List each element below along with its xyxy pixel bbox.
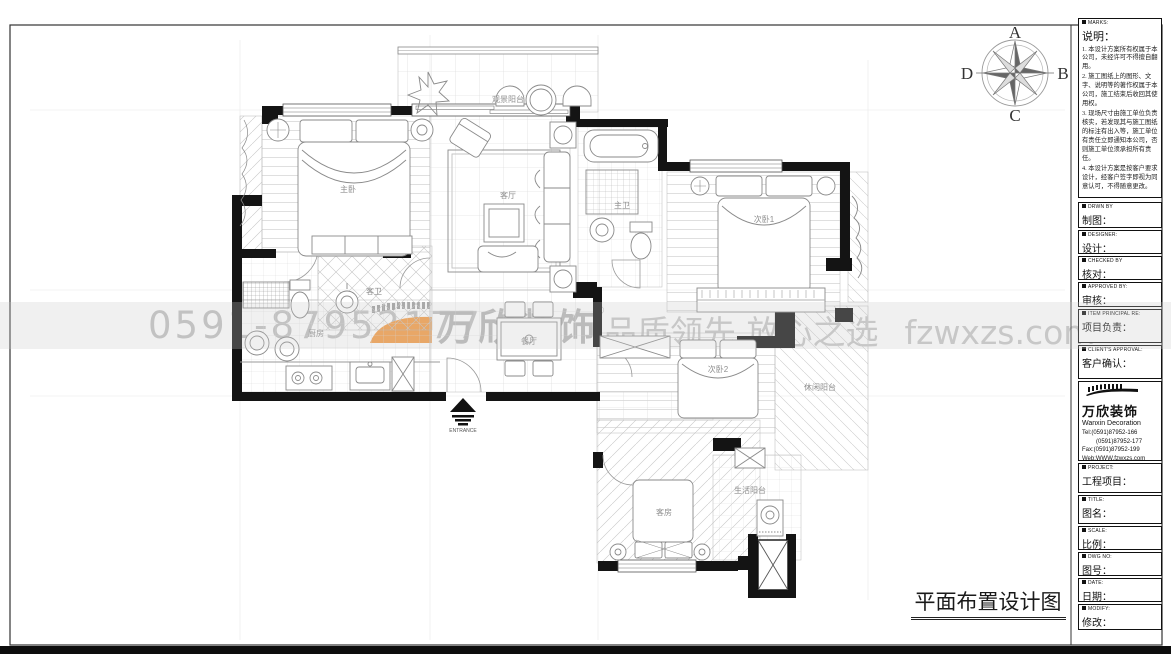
titleblock-company: 万欣装饰 Wanxin Decoration Tel:(0591)87952-1…	[1078, 381, 1162, 461]
room-label-bedroom-2: 次卧2	[708, 364, 729, 374]
checked-by-zh: 核对：	[1082, 266, 1158, 281]
note-item-2: 2. 施工图纸上的图形、文字、说明等的著作权属于本公司，施工结束后收回其使用权。	[1082, 73, 1158, 109]
bullet-square-icon	[1082, 284, 1086, 288]
titleblock: MARKS: 说明： 1. 本设计方案所有权属于本公司，未经许可不得擅自翻用。 …	[1078, 18, 1164, 632]
entrance-arrow-icon: ENTRANCE	[449, 398, 477, 434]
marks-zh-label: 说明：	[1082, 28, 1158, 44]
drawing-sheet: 0591-87952177 品质领先 放心之选fzwxzs.com 万欣装饰 ®	[0, 0, 1171, 654]
modify-zh: 修改：	[1082, 614, 1158, 629]
company-fax: Fax:(0591)87952-199	[1082, 446, 1158, 455]
title-zh: 图名：	[1082, 505, 1158, 520]
room-label-guest-bath: 客卫	[366, 286, 382, 296]
dwg-no-en: DWG NO:	[1088, 554, 1112, 560]
company-tel1: Tel:(0591)87952-166	[1082, 429, 1158, 438]
titleblock-field-modify: MODIFY: 修改：	[1078, 604, 1162, 630]
project-en: PROJECT:	[1088, 465, 1114, 471]
titleblock-field-date: DATE: 日期：	[1078, 578, 1162, 602]
titleblock-field-approved-by: APPROVED BY: 审核：	[1078, 282, 1162, 307]
date-en: DATE:	[1088, 580, 1103, 586]
room-label-master-bedroom: 主卧	[340, 184, 356, 194]
compass-east-label: B	[1057, 64, 1068, 83]
room-label-living-room: 客厅	[500, 190, 516, 200]
floor-plan: ENTRANCE 观景阳台 主卧 客厅 主卫 次卧1 客卫 厨房 餐厅 次卧2 …	[0, 0, 1171, 654]
drawn-by-zh: 制图：	[1082, 212, 1158, 227]
approved-by-en: APPROVED BY:	[1088, 284, 1127, 290]
sheet-title-text: 平面布置设计图	[911, 590, 1066, 620]
compass-south-label: C	[1009, 106, 1020, 125]
titleblock-field-drawn-by: DRWN BY 制图：	[1078, 202, 1162, 228]
item-principal-en: ITEM PRINCIPAL RE:	[1088, 311, 1141, 317]
titleblock-field-title: TITLE: 图名：	[1078, 495, 1162, 524]
bullet-square-icon	[1082, 20, 1086, 24]
modify-en: MODIFY:	[1088, 606, 1110, 612]
designer-zh: 设计：	[1082, 240, 1158, 255]
titleblock-field-scale: SCALE: 比例：	[1078, 526, 1162, 550]
room-label-view-balcony: 观景阳台	[492, 94, 524, 104]
room-label-kitchen: 厨房	[308, 328, 324, 338]
designer-en: DESIGNER:	[1088, 232, 1117, 238]
company-logo-icon	[1082, 383, 1158, 396]
entrance-label: ENTRANCE	[449, 428, 477, 434]
titleblock-field-client-approval: CLIENT'S APPROVAL: 客户确认：	[1078, 345, 1162, 379]
sheet-title: 平面布置设计图	[893, 586, 1083, 616]
project-zh: 工程项目：	[1082, 473, 1158, 488]
room-label-bedroom-1: 次卧1	[754, 214, 775, 224]
compass-west-label: D	[961, 64, 973, 83]
compass-north-label: A	[1009, 23, 1022, 42]
room-label-leisure-balcony: 休闲阳台	[804, 382, 836, 392]
client-approval-en: CLIENT'S APPROVAL:	[1088, 347, 1143, 353]
date-zh: 日期：	[1082, 588, 1158, 603]
titleblock-field-checked-by: CHECKED BY 核对：	[1078, 256, 1162, 280]
titleblock-field-item-principal: ITEM PRINCIPAL RE: 项目负责：	[1078, 309, 1162, 343]
marks-en-label: MARKS:	[1088, 20, 1108, 26]
note-item-4: 4. 本设计方案是按客户要求设计，经客户签字即视为同意认可，不得随意更改。	[1082, 165, 1158, 192]
room-label-master-bath: 主卫	[614, 200, 630, 210]
titleblock-field-dwg-no: DWG NO: 图号：	[1078, 552, 1162, 576]
room-label-utility-balcony: 生活阳台	[734, 485, 766, 495]
title-en: TITLE:	[1088, 497, 1104, 503]
item-principal-zh: 项目负责：	[1082, 319, 1158, 334]
bullet-square-icon	[1082, 580, 1086, 584]
room-label-dining: 餐厅	[521, 337, 537, 346]
bullet-square-icon	[1082, 528, 1086, 532]
dwg-no-zh: 图号：	[1082, 562, 1158, 577]
bullet-square-icon	[1082, 204, 1086, 208]
client-approval-zh: 客户确认：	[1082, 355, 1158, 370]
room-label-guest-room: 客房	[656, 507, 672, 517]
checked-by-en: CHECKED BY	[1088, 258, 1123, 264]
note-item-1: 1. 本设计方案所有权属于本公司，未经许可不得擅自翻用。	[1082, 46, 1158, 73]
scale-zh: 比例：	[1082, 536, 1158, 551]
bullet-square-icon	[1082, 554, 1086, 558]
titleblock-marks: MARKS: 说明： 1. 本设计方案所有权属于本公司，未经许可不得擅自翻用。 …	[1078, 18, 1162, 198]
company-tel2: (0591)87952-177	[1082, 438, 1158, 447]
bullet-square-icon	[1082, 347, 1086, 351]
bullet-square-icon	[1082, 497, 1086, 501]
titleblock-field-project: PROJECT: 工程项目：	[1078, 463, 1162, 493]
bullet-square-icon	[1082, 465, 1086, 469]
company-brand-en: Wanxin Decoration	[1082, 420, 1158, 427]
bullet-square-icon	[1082, 258, 1086, 262]
drawn-by-en: DRWN BY	[1088, 204, 1113, 210]
washing-machine	[757, 500, 783, 536]
company-web: Web:WWW.fzwxzs.com	[1082, 455, 1158, 461]
scale-en: SCALE:	[1088, 528, 1107, 534]
elevator-shaft	[758, 540, 788, 590]
note-item-3: 3. 现场尺寸由施工单位负责核实，若发现其与施工图纸的标注有出入等，施工单位有责…	[1082, 110, 1158, 164]
bullet-square-icon	[1082, 232, 1086, 236]
titleblock-field-designer: DESIGNER: 设计：	[1078, 230, 1162, 254]
bullet-square-icon	[1082, 311, 1086, 315]
bullet-square-icon	[1082, 606, 1086, 610]
company-brand: 万欣装饰	[1082, 401, 1158, 420]
approved-by-zh: 审核：	[1082, 292, 1158, 307]
